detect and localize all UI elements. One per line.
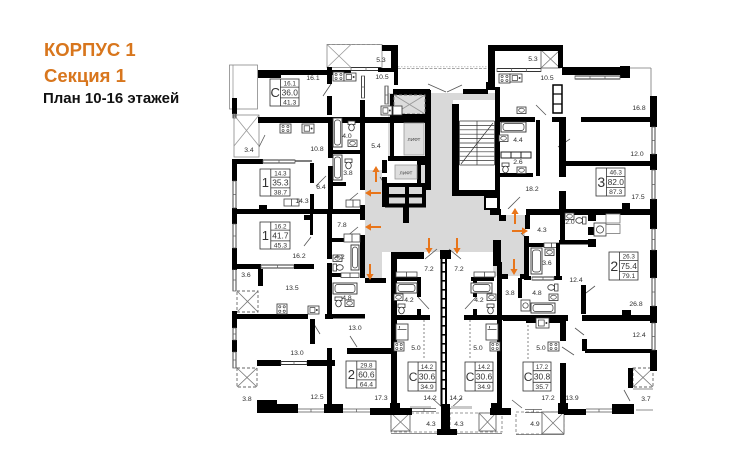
svg-text:10.5: 10.5	[375, 74, 388, 81]
svg-text:26.3: 26.3	[623, 254, 636, 261]
svg-text:3: 3	[597, 174, 605, 190]
svg-text:35.3: 35.3	[272, 178, 289, 188]
svg-text:4.2: 4.2	[404, 297, 414, 304]
svg-text:13.0: 13.0	[290, 350, 303, 357]
svg-text:30.6: 30.6	[476, 372, 493, 382]
svg-text:5.0: 5.0	[536, 345, 546, 352]
svg-text:10.8: 10.8	[310, 146, 323, 153]
svg-text:10.5: 10.5	[540, 75, 553, 82]
svg-text:7.8: 7.8	[337, 222, 347, 229]
svg-text:14.2: 14.2	[423, 395, 436, 402]
svg-text:14.2: 14.2	[449, 395, 462, 402]
svg-text:2: 2	[348, 367, 355, 382]
svg-text:ЛИФТ: ЛИФТ	[400, 171, 413, 177]
svg-text:3.6: 3.6	[542, 260, 552, 267]
svg-text:17.5: 17.5	[631, 194, 644, 201]
svg-text:С: С	[524, 370, 533, 384]
svg-text:5.4: 5.4	[371, 143, 381, 150]
svg-text:18.2: 18.2	[525, 186, 538, 193]
svg-text:4.4: 4.4	[513, 137, 523, 144]
svg-text:16.2: 16.2	[292, 253, 305, 260]
svg-text:4.9: 4.9	[530, 421, 540, 428]
svg-text:16.1: 16.1	[306, 75, 319, 82]
svg-text:14.2: 14.2	[421, 364, 434, 371]
svg-text:16.2: 16.2	[274, 223, 287, 230]
svg-text:41.3: 41.3	[283, 99, 296, 106]
svg-text:17.3: 17.3	[374, 395, 387, 402]
svg-text:26.8: 26.8	[629, 301, 642, 308]
svg-text:17.2: 17.2	[541, 395, 554, 402]
svg-text:12.0: 12.0	[630, 151, 643, 158]
svg-text:34.9: 34.9	[420, 384, 433, 391]
svg-text:4.8: 4.8	[342, 295, 352, 302]
svg-text:16.8: 16.8	[632, 105, 645, 112]
svg-text:12.4: 12.4	[569, 277, 582, 284]
svg-text:64.4: 64.4	[360, 381, 373, 388]
svg-text:29.8: 29.8	[360, 362, 373, 369]
svg-text:С: С	[271, 85, 280, 100]
svg-text:35.7: 35.7	[535, 384, 548, 391]
svg-text:6.4: 6.4	[316, 184, 326, 191]
svg-text:4.8: 4.8	[532, 290, 542, 297]
svg-text:41.7: 41.7	[272, 231, 289, 241]
svg-text:5.0: 5.0	[473, 345, 483, 352]
svg-text:12.5: 12.5	[310, 394, 323, 401]
svg-text:4.3: 4.3	[454, 421, 464, 428]
svg-text:36.0: 36.0	[282, 88, 299, 98]
svg-text:30.6: 30.6	[419, 372, 436, 382]
svg-text:2: 2	[610, 258, 618, 274]
svg-text:79.1: 79.1	[622, 273, 635, 280]
svg-text:12.4: 12.4	[632, 332, 645, 339]
svg-text:3.8: 3.8	[242, 396, 252, 403]
svg-text:4.0: 4.0	[342, 133, 352, 140]
svg-text:5.3: 5.3	[528, 56, 538, 63]
svg-text:5.3: 5.3	[376, 57, 386, 64]
svg-text:30.8: 30.8	[534, 372, 551, 382]
svg-text:60.6: 60.6	[358, 370, 375, 380]
svg-text:4.3: 4.3	[426, 421, 436, 428]
svg-text:4.3: 4.3	[537, 227, 547, 234]
svg-text:14.2: 14.2	[478, 364, 491, 371]
svg-text:2.6: 2.6	[513, 159, 523, 166]
svg-text:3.6: 3.6	[241, 272, 251, 279]
svg-text:34.9: 34.9	[477, 384, 490, 391]
svg-text:14.3: 14.3	[274, 170, 287, 177]
svg-text:7.2: 7.2	[424, 266, 434, 273]
svg-text:13.9: 13.9	[565, 395, 578, 402]
svg-text:5.0: 5.0	[411, 345, 421, 352]
svg-text:С: С	[466, 370, 475, 384]
svg-text:13.5: 13.5	[285, 285, 298, 292]
svg-text:17.2: 17.2	[536, 364, 549, 371]
svg-text:4.2: 4.2	[335, 254, 345, 261]
svg-text:С: С	[409, 370, 418, 384]
svg-text:45.3: 45.3	[274, 242, 287, 249]
svg-text:87.3: 87.3	[609, 189, 622, 196]
svg-text:3.8: 3.8	[505, 290, 515, 297]
svg-text:75.4: 75.4	[621, 261, 638, 271]
svg-text:82.0: 82.0	[608, 177, 625, 187]
svg-text:3.7: 3.7	[641, 396, 651, 403]
svg-text:14.3: 14.3	[295, 198, 308, 205]
svg-text:1: 1	[262, 175, 269, 190]
svg-text:ЛИФТ: ЛИФТ	[408, 137, 421, 143]
svg-text:3.4: 3.4	[244, 147, 254, 154]
svg-text:2.0: 2.0	[565, 219, 575, 226]
svg-text:16.1: 16.1	[284, 80, 297, 87]
svg-text:1: 1	[262, 228, 269, 243]
svg-text:7.2: 7.2	[454, 266, 464, 273]
svg-text:46.3: 46.3	[610, 170, 623, 177]
svg-text:3.8: 3.8	[343, 170, 353, 177]
svg-text:4.2: 4.2	[474, 297, 484, 304]
svg-text:38.7: 38.7	[274, 189, 287, 196]
svg-text:13.0: 13.0	[348, 325, 361, 332]
